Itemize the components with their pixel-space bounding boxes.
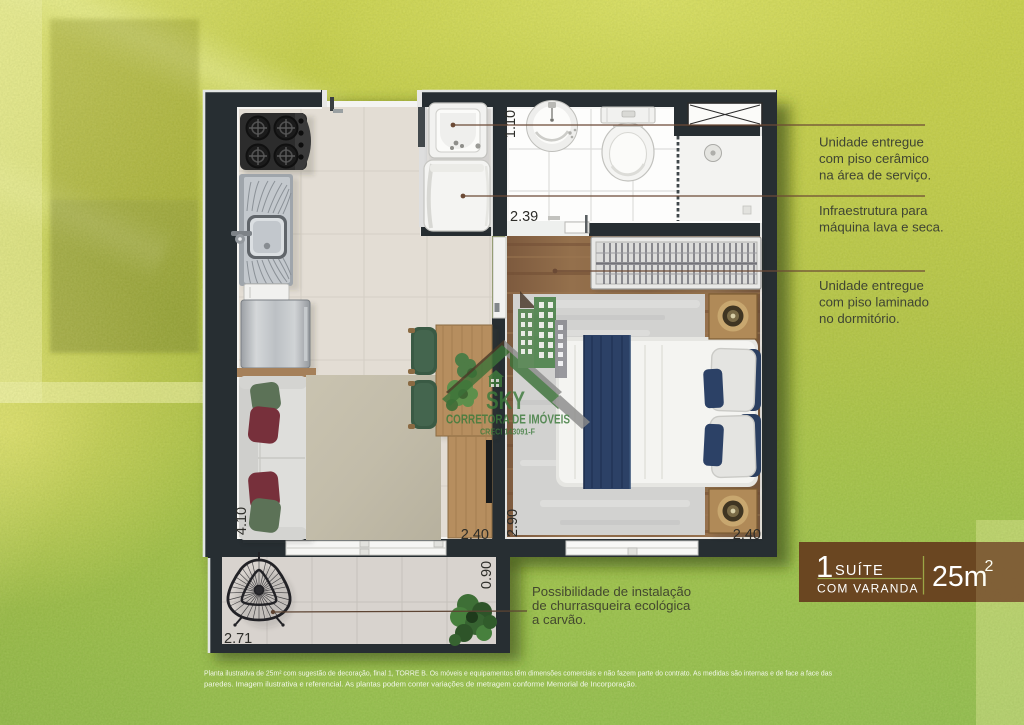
svg-text:SKY: SKY <box>486 387 525 415</box>
svg-text:a carvão.: a carvão. <box>532 612 586 627</box>
svg-text:Infraestrutura para: Infraestrutura para <box>819 203 928 218</box>
svg-text:CORRETORA DE IMÓVEIS: CORRETORA DE IMÓVEIS <box>446 412 570 427</box>
svg-text:com piso cerâmico: com piso cerâmico <box>819 151 929 166</box>
svg-text:SUÍTE: SUÍTE <box>835 562 884 579</box>
svg-text:de churrasqueira ecológica: de churrasqueira ecológica <box>532 598 691 613</box>
svg-text:Planta ilustrativa de 25m² com: Planta ilustrativa de 25m² com sugestão … <box>204 669 832 678</box>
svg-text:Unidade entregue: Unidade entregue <box>819 278 924 293</box>
svg-text:1.10: 1.10 <box>503 110 519 138</box>
svg-text:2.90: 2.90 <box>505 509 521 537</box>
svg-text:2.40: 2.40 <box>733 527 761 543</box>
svg-text:2.71: 2.71 <box>224 631 252 647</box>
svg-text:4.10: 4.10 <box>234 507 250 535</box>
svg-text:0.90: 0.90 <box>479 561 495 589</box>
svg-text:Unidade entregue: Unidade entregue <box>819 135 924 150</box>
svg-text:2.40: 2.40 <box>461 527 489 543</box>
svg-text:paredes. Imagem ilustrativa e: paredes. Imagem ilustrativa e referencia… <box>204 680 637 689</box>
svg-text:com piso laminado: com piso laminado <box>819 295 929 310</box>
svg-text:máquina lava e seca.: máquina lava e seca. <box>819 220 944 235</box>
svg-text:no dormitório.: no dormitório. <box>819 311 900 326</box>
svg-text:Possibilidade de instalação: Possibilidade de instalação <box>532 584 691 599</box>
svg-text:2.39: 2.39 <box>510 209 538 225</box>
svg-text:COM VARANDA: COM VARANDA <box>817 582 919 596</box>
svg-text:na área de serviço.: na área de serviço. <box>819 168 931 183</box>
svg-text:CRECI 143091-F: CRECI 143091-F <box>480 428 535 437</box>
